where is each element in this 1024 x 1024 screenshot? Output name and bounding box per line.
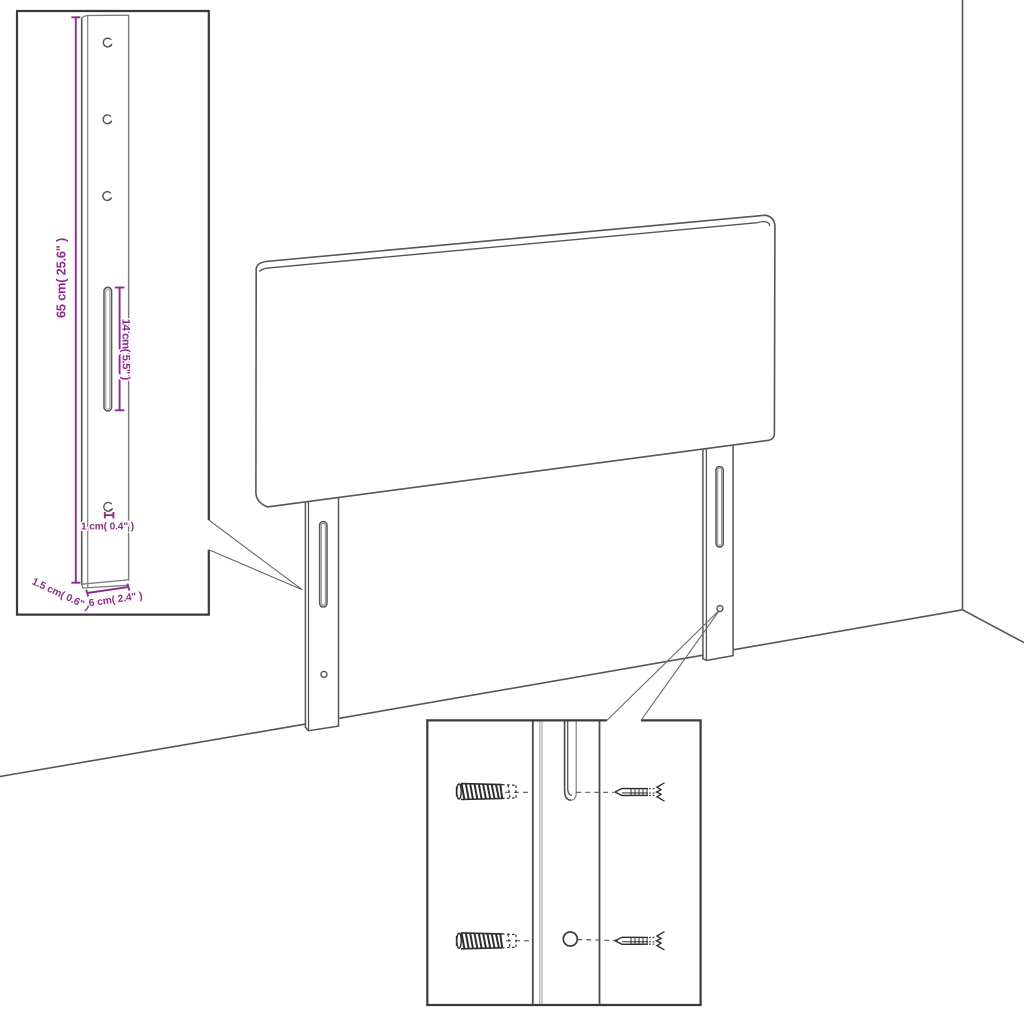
svg-text:1 cm( 0.4" ): 1 cm( 0.4" ) (81, 522, 134, 533)
svg-text:65 cm( 25.6" ): 65 cm( 25.6" ) (54, 238, 69, 318)
svg-text:6 cm( 2.4" ): 6 cm( 2.4" ) (88, 591, 143, 610)
svg-text:14 cm( 5.5" ): 14 cm( 5.5" ) (120, 319, 132, 381)
